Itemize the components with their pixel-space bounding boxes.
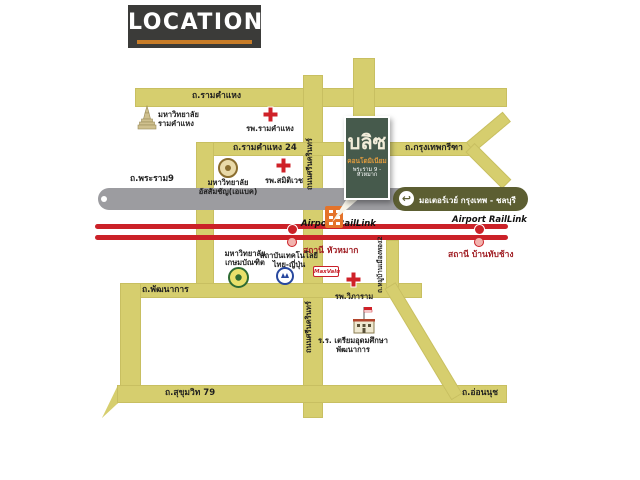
label-krungthepkreetha: ถ.กรุงเทพกรีฑา (405, 144, 463, 153)
station-huamak-dot2 (287, 237, 297, 247)
abac-crest-icon (218, 158, 238, 178)
rail-line-lower (95, 235, 508, 240)
location-map: LOCATION ↩ มอเตอร์เวย์ กรุงเทพ - ชลบุรี … (0, 0, 640, 480)
station-banthapchang-dot2 (474, 237, 484, 247)
u-turn-icon: ↩ (399, 191, 414, 206)
label-onnut: ถ.อ่อนนุช (462, 389, 498, 398)
station-banthapchang-dot (474, 224, 485, 235)
hospital-cross-icon (262, 106, 279, 123)
project-logo-subtitle: คอนโดมิเนียม (346, 158, 388, 165)
school-icon (352, 306, 376, 335)
label-abac-university: มหาวิทยาลัย อัสสัมชัญ(เอแบค) (194, 178, 262, 197)
road-vertical-west (196, 142, 214, 298)
hospital-cross-icon (345, 271, 362, 288)
label-mueangthong2: ถ.หมู่บ้านเมืองทอง2 (377, 238, 384, 293)
label-sukhumvit79: ถ.สุขุมวิท 79 (165, 389, 215, 398)
hospital-cross-icon (275, 157, 292, 174)
project-logo-title: บลิซ (346, 130, 388, 154)
kasem-bundit-crest-icon (228, 267, 249, 288)
location-banner-underline (137, 40, 252, 44)
label-vibharam-hospital: รพ.วิภาราม (328, 292, 380, 301)
label-ramkhamhaeng-hospital: รพ.รามคำแหง (244, 124, 296, 133)
station-banthapchang-name: สถานี บ้านทับช้าง (448, 247, 514, 261)
label-samitivej-hospital: รพ.สมิติเวช (258, 176, 310, 185)
road-sukhumvit79-tail (102, 385, 118, 418)
road-branch-lower (465, 143, 511, 189)
label-triamudom-school: ร.ร. เตรียมอุดมศึกษา พัฒนาการ (303, 336, 403, 355)
road-stub-north (353, 58, 375, 125)
label-pattanakarn: ถ.พัฒนาการ (142, 286, 189, 295)
label-ramkhamhaeng24: ถ.รามคำแหง 24 (233, 144, 297, 153)
project-logo-tagline: พระราม 9 - หัวหมาก (346, 168, 388, 179)
station-huamak-dot (287, 224, 298, 235)
motorway-end-mark (101, 196, 107, 202)
temple-icon (137, 105, 157, 130)
motorway-label: มอเตอร์เวย์ กรุงเทพ - ชลบุรี (419, 194, 516, 207)
location-banner: LOCATION (128, 5, 261, 48)
arl-label-banthapchang: Airport RailLink (452, 215, 527, 225)
motorway-sign: ↩ มอเตอร์เวย์ กรุงเทพ - ชลบุรี (393, 187, 528, 211)
road-vertical-left (120, 283, 141, 395)
project-logo: บลิซ คอนโดมิเนียม พระราม 9 - หัวหมาก (344, 116, 390, 200)
location-banner-title: LOCATION (128, 10, 261, 35)
thai-nichi-crest-icon (276, 267, 294, 285)
label-ramkhamhaeng-university: มหาวิทยาลัย รามคำแหง (158, 110, 214, 129)
label-ramkhamhaeng: ถ.รามคำแหง (192, 92, 241, 101)
label-rama9: ถ.พระราม9 (130, 175, 174, 184)
maxvalu-sign: MaxValu (313, 266, 339, 277)
